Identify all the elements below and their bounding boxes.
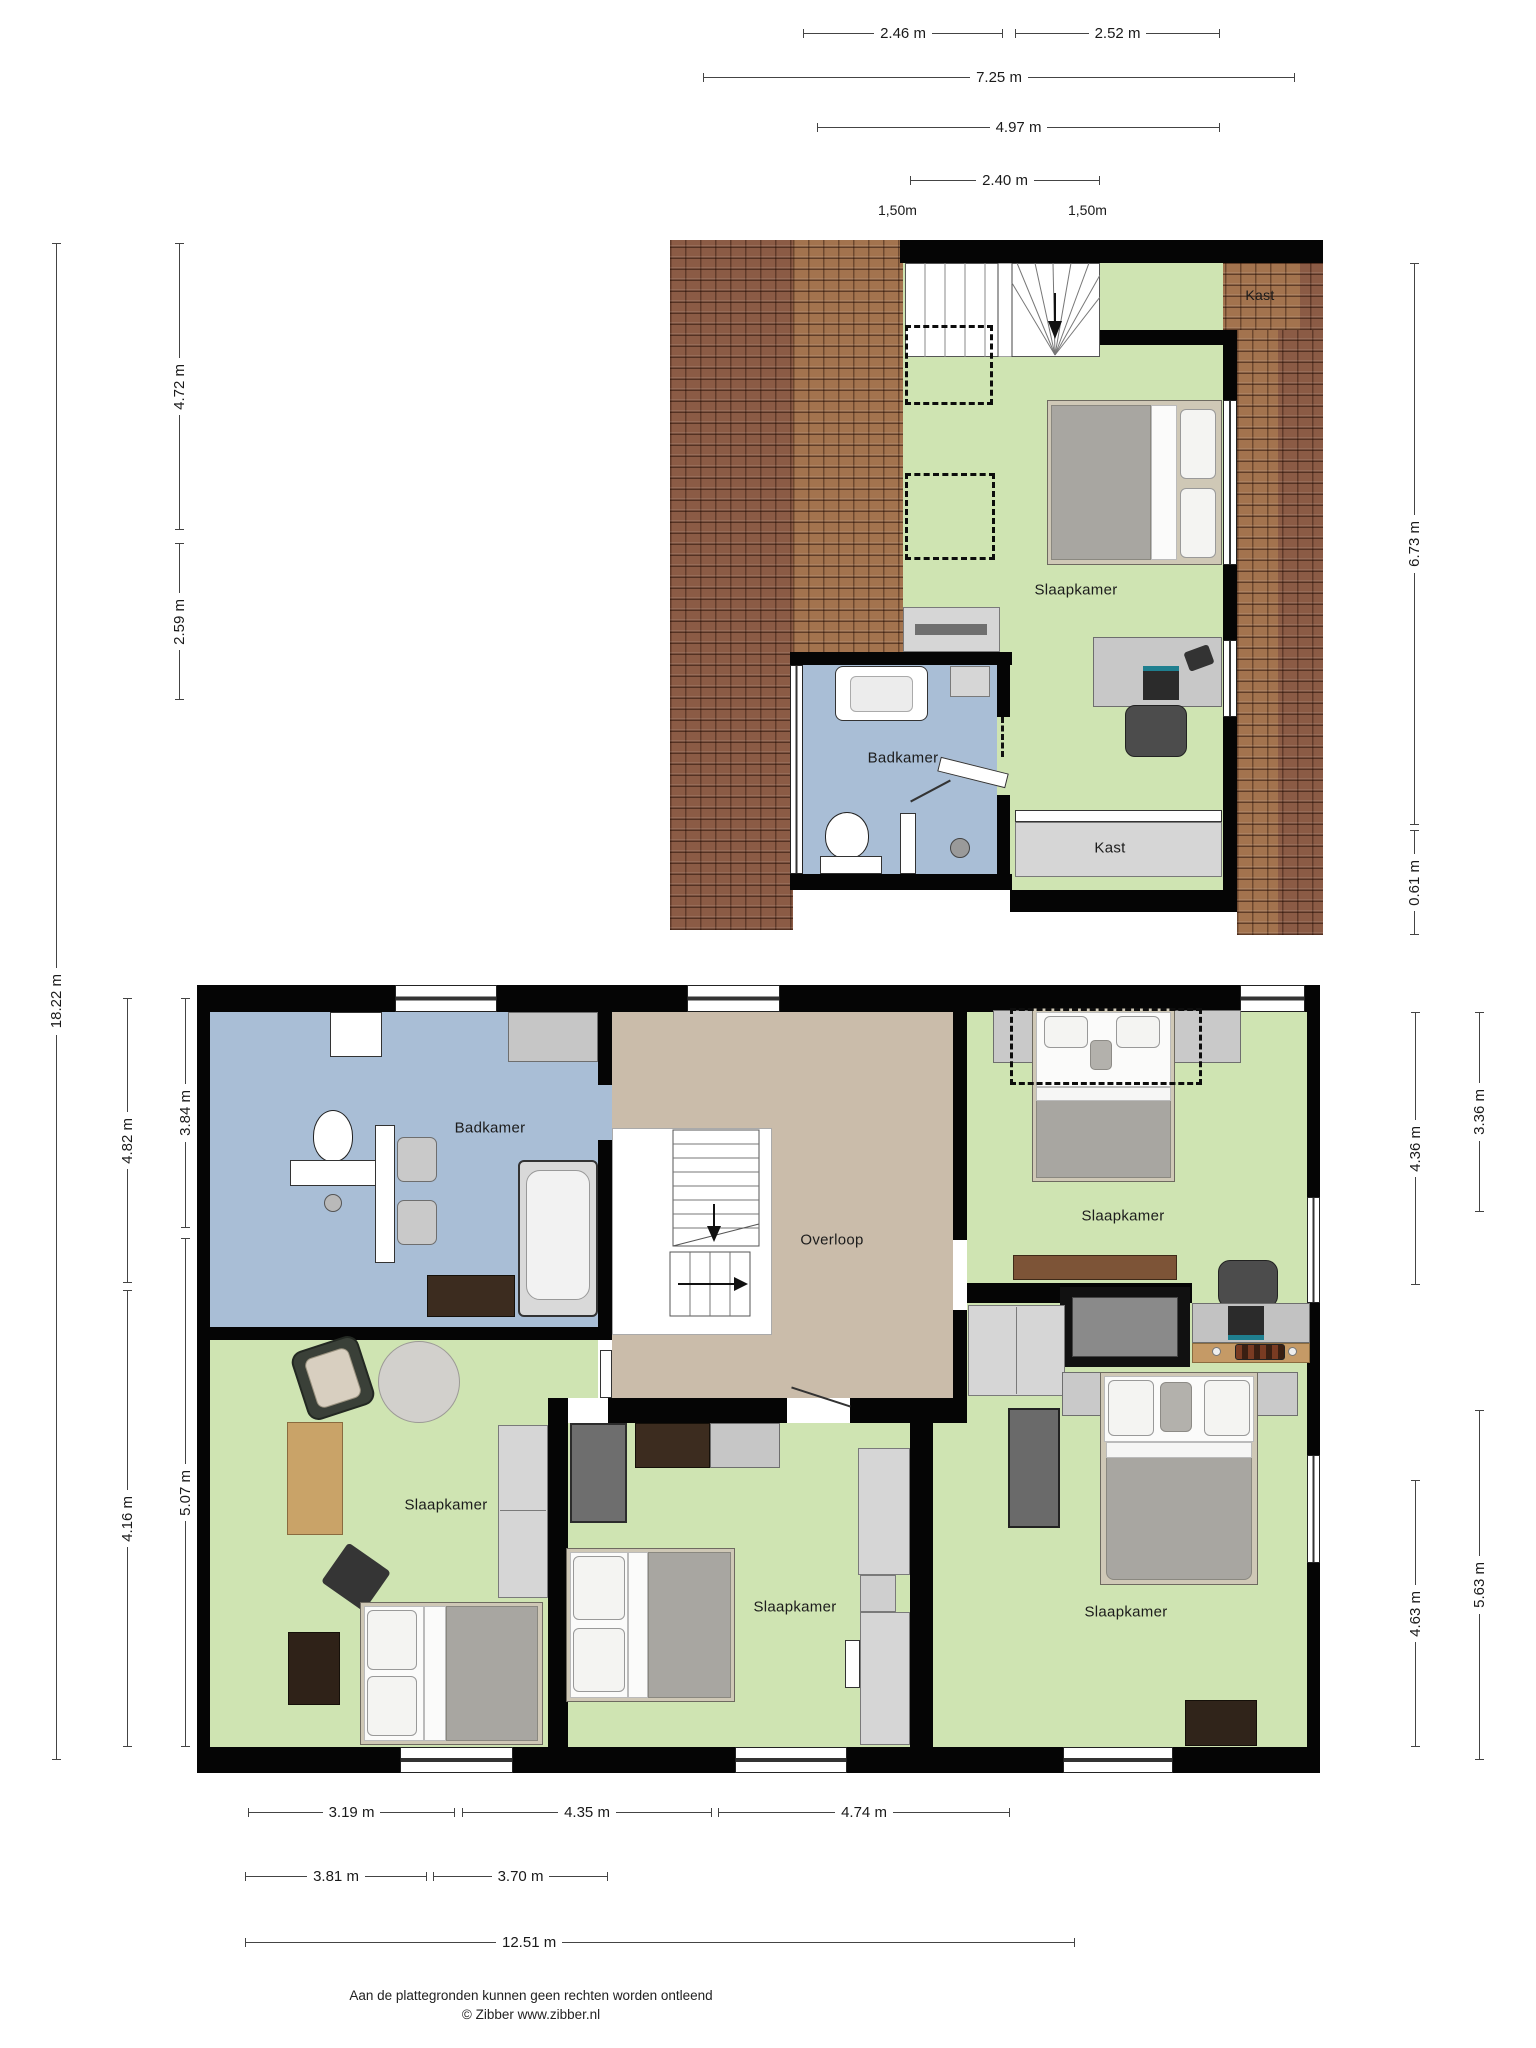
room-label-attic-kast: Kast [1094,840,1125,857]
dimension: 12.51 m [245,1934,1075,1950]
dimension: 0.61 m [1405,830,1423,935]
ff-bath-cabinet [427,1275,515,1317]
bl-bed-pillow [367,1676,417,1736]
wall [953,1310,967,1398]
br-nightstand [1256,1372,1298,1416]
wall [997,665,1010,717]
wall [608,1398,787,1423]
bl-wardrobe [498,1425,548,1598]
ff-stairs [612,1128,772,1335]
dimension: 3.19 m [248,1804,455,1820]
dimension-value: 7.25 m [970,69,1028,86]
dimension-value: 3.84 m [177,1084,194,1142]
dimension: 2.46 m [803,25,1003,41]
br-bed-cushion [1160,1382,1192,1432]
mid-bed-duvet [628,1552,648,1698]
ff-toilet-shelf [290,1160,380,1186]
wall [900,240,1323,263]
dimension-value: 1,50m [878,202,917,218]
dimension-value: 4.97 m [990,119,1048,136]
mid-bed-pillow [573,1556,625,1620]
wall [847,1747,1063,1773]
dimension: 2.52 m [1015,25,1220,41]
br-closet-divider [1016,1307,1017,1394]
dimension-value: 1,50m [1068,202,1107,218]
dimension-value: 0.61 m [1406,854,1423,912]
dimension-value: 2.46 m [874,25,932,42]
dimension-value: 5.07 m [177,1464,194,1522]
ff-vanity-divider [375,1125,395,1263]
dimension: 18.22 m [47,243,65,1760]
tr-desk-knob [1288,1347,1297,1356]
attic-kast-shelf [1015,810,1222,822]
wall [197,1747,400,1773]
bl-desk [287,1422,343,1535]
wall [790,652,1012,665]
dimension-value: 6.73 m [1406,515,1423,573]
wall [497,985,687,1012]
attic-shelf [950,666,990,697]
attic-bed-pillow [1180,488,1216,558]
attic-chair [1125,705,1187,757]
attic-shower-head [950,838,970,858]
dimension-value: 4.35 m [558,1804,616,1821]
mid-closet-small [860,1575,896,1612]
dimension-value: 18.22 m [48,968,65,1034]
dimension-value: 3.36 m [1471,1083,1488,1141]
wall [598,1012,612,1085]
dimension: 5.63 m [1470,1410,1488,1760]
mid-desk [635,1423,710,1468]
dimension-value: 3.19 m [323,1804,381,1821]
br-bed-pillow [1108,1380,1154,1436]
wall [1307,1012,1320,1197]
tr-wardrobe-outline [1010,1008,1202,1085]
wall [197,1327,612,1340]
roof-left-light [793,240,903,655]
dimension: 3.84 m [176,998,194,1228]
room-label-ff-overloop: Overloop [800,1232,863,1249]
bl-bed-pillow [367,1610,417,1670]
wall [1305,985,1320,1012]
dimension: 4.16 m [118,1290,136,1747]
wall [1307,1563,1320,1773]
room-label-ff-slaapkamer-bl: Slaapkamer [404,1497,487,1514]
dimension-value: 2.52 m [1089,25,1147,42]
dimension-value: 5.63 m [1471,1556,1488,1614]
window [790,665,803,874]
dimension-value: 2.59 m [171,593,188,651]
mid-wardrobe [570,1423,627,1523]
dimension-value: 4.82 m [119,1112,136,1170]
room-label-ff-slaapkamer-tr: Slaapkamer [1081,1208,1164,1225]
dimension-value: 3.81 m [307,1868,365,1885]
window [735,1747,847,1773]
mid-bed-blanket [648,1552,731,1698]
dimension: 4.63 m [1406,1480,1424,1747]
tr-headboard-shelf [1013,1255,1177,1280]
roof-right-light [1237,330,1278,935]
wall-dashed [1001,717,1004,757]
dimension: 4.72 m [170,243,188,530]
dimension-value: 4.72 m [171,358,188,416]
attic-dresser-handle [915,624,987,635]
tr-keyboard [1235,1344,1285,1360]
wall [1100,330,1237,345]
mid-closet-door [845,1640,860,1688]
window [1063,1747,1173,1773]
attic-laptop [1143,666,1179,700]
dimension: 3.70 m [433,1868,608,1884]
dimension-value: 3.70 m [492,1868,550,1885]
window [395,985,497,1012]
wall [1223,717,1237,890]
dimension: 4.74 m [718,1804,1010,1820]
bl-wardrobe-divider [500,1510,546,1511]
attic-bed-duvet [1151,405,1177,560]
attic-bed-pillow [1180,409,1216,479]
dimension-value: 4.16 m [119,1490,136,1548]
ff-sink [397,1200,437,1245]
dimension: 4.82 m [118,998,136,1283]
bl-bed-duvet [424,1606,446,1741]
room-label-ff-slaapkamer-br: Slaapkamer [1084,1604,1167,1621]
attic-shower-panel [900,813,916,874]
br-bed-fold [1106,1442,1252,1458]
dimension: 4.97 m [817,119,1220,135]
bl-rug-round [378,1341,460,1423]
wall [197,985,395,1012]
dormer-outline [905,473,995,560]
dimension: 3.81 m [245,1868,427,1884]
ff-bathtub-inner [526,1170,590,1300]
wall [1173,1747,1320,1773]
attic-bed-blanket [1051,405,1151,560]
dimension: 3.36 m [1470,1012,1488,1212]
attic-sink-basin [850,676,913,712]
window [687,985,780,1012]
tv-panel-screen [1072,1297,1178,1357]
ff-sink [397,1137,437,1182]
room-label-attic-slaapkamer: Slaapkamer [1034,582,1117,599]
bl-bed-blanket [446,1606,538,1741]
dimension: 5.07 m [176,1238,194,1747]
wall [1223,345,1237,400]
wall [910,1400,933,1747]
br-bed-blanket [1106,1442,1252,1580]
dimension: 2.40 m [910,172,1100,188]
dimension: 7.25 m [703,69,1295,85]
dimension-value: 4.63 m [1407,1585,1424,1643]
window [1223,640,1237,717]
br-dresser [1185,1700,1257,1746]
dimension-value: 12.51 m [496,1934,562,1951]
door-leaf [600,1350,612,1398]
footer-disclaimer: Aan de plattegronden kunnen geen rechten… [349,1988,712,2003]
window [400,1747,513,1773]
wall [953,1012,967,1240]
wall [850,1398,967,1423]
attic-toilet-bowl [825,812,869,859]
dimension-value: 4.36 m [1407,1120,1424,1178]
tr-desk-knob [1212,1347,1221,1356]
mid-closet-low [860,1612,910,1745]
wall [598,1140,612,1327]
dimension: 4.35 m [462,1804,712,1820]
room-label-kast-roof: Kast [1245,287,1274,303]
room-label-ff-slaapkamer-mid: Slaapkamer [753,1599,836,1616]
wall [1010,890,1237,912]
dimension: 2.59 m [170,543,188,700]
floorplan-page: Kast Slaapkamer Badkamer Kast [0,0,1536,2048]
wall [197,1012,210,1773]
ff-washer [330,1012,382,1057]
wall [548,1398,568,1423]
ff-toilet-bowl [313,1110,353,1162]
wall [548,1423,568,1747]
window [1307,1455,1320,1563]
wall [790,874,1012,890]
dimension: 6.73 m [1405,263,1423,825]
room-label-attic-badkamer: Badkamer [868,750,939,767]
br-nightstand [1062,1372,1104,1416]
window [1307,1197,1320,1303]
dimension: 4.36 m [1406,1012,1424,1285]
wall [513,1747,735,1773]
room-label-ff-badkamer: Badkamer [455,1120,526,1137]
tr-chair [1218,1260,1278,1308]
window [1223,400,1237,565]
roof-left-dark [670,240,793,930]
mid-bed-pillow [573,1628,625,1692]
mid-desk-ext [710,1423,780,1468]
dimension-value: 2.40 m [976,172,1034,189]
window [1240,985,1305,1012]
dimension-value: 4.74 m [835,1804,893,1821]
bl-nightstand [288,1632,340,1705]
mid-closet-tall [858,1448,910,1575]
footer-credit: © Zibber www.zibber.nl [462,2007,600,2022]
dormer-outline [905,325,993,405]
ff-stool [324,1194,342,1212]
attic-toilet-tank [820,856,882,874]
br-wardrobe-dark [1008,1408,1060,1528]
tr-bed-fold [1036,1087,1171,1101]
tr-laptop [1228,1306,1264,1340]
wall [1223,565,1237,640]
ff-counter [508,1012,598,1062]
wall [997,795,1010,874]
br-bed-pillow [1204,1380,1250,1436]
